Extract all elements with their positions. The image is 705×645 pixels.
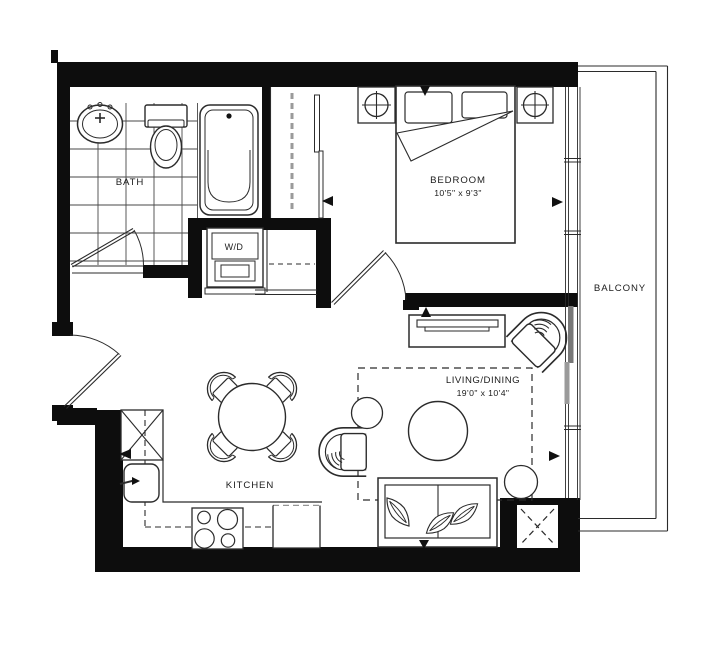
balcony-label: BALCONY [594, 283, 646, 294]
entry-door [64, 335, 121, 409]
living-dining-dimensions: 19'0" x 10'4" [457, 388, 510, 398]
balcony-outline [578, 66, 668, 531]
balcony-sliding-door-panel [568, 306, 574, 363]
wall-entry-cap-top [52, 322, 73, 336]
bath-label: BATH [116, 177, 144, 188]
bath-door [71, 229, 144, 274]
nightstand-left [358, 87, 395, 123]
nightstand-right [517, 87, 553, 123]
tub-drain [226, 113, 231, 118]
stove [192, 508, 243, 549]
kitchen-label: KITCHEN [226, 480, 274, 491]
round-ottoman [409, 402, 468, 461]
sofa [378, 478, 497, 547]
wall-closet-right [316, 230, 331, 308]
marker-arrow [322, 196, 333, 206]
closet [255, 230, 317, 295]
toilet [145, 105, 187, 168]
bath-sink [78, 103, 123, 144]
marker-arrow [552, 197, 563, 207]
wall-bath-east [262, 87, 271, 218]
tv [417, 320, 498, 327]
living-dining-label: LIVING/DINING [446, 375, 520, 386]
side-table [505, 466, 538, 499]
bedroom-door [332, 251, 407, 305]
floorplan-svg: BATH W/D BEDROOM 10'5" x 9'3" BALCONY KI… [0, 0, 705, 645]
pillow [405, 92, 452, 123]
bedroom-label: BEDROOM [430, 175, 486, 186]
laundry-label: W/D [225, 242, 244, 252]
wall-entry-jog [57, 408, 97, 425]
wall-bath-south [143, 265, 189, 278]
armchair-northeast [506, 302, 576, 372]
wall-bedroom-south [405, 293, 578, 307]
wall-bottom [95, 547, 505, 572]
tv-console [409, 315, 505, 347]
marker-arrow [549, 451, 560, 461]
bed [396, 86, 515, 243]
washer-dryer [205, 228, 265, 294]
dining-table [201, 366, 304, 469]
wall-closet-left [188, 230, 202, 298]
service-shaft [517, 505, 558, 548]
wall-top [57, 62, 578, 87]
side-table [352, 398, 383, 429]
bedroom-sliding-door [271, 87, 324, 218]
wall-left-upper [57, 87, 70, 335]
wall-door-cap [403, 300, 419, 310]
bedroom-dimensions: 10'5" x 9'3" [434, 188, 482, 198]
balcony-sliding-door-panel2 [565, 362, 570, 404]
wall-tick-topleft [51, 50, 58, 63]
armchair-west [319, 428, 366, 476]
floorplan-canvas: BATH W/D BEDROOM 10'5" x 9'3" BALCONY KI… [0, 0, 705, 645]
marker-arrow [421, 307, 431, 317]
kitchen-sink [120, 464, 159, 502]
fridge [273, 506, 320, 549]
bathtub [200, 105, 258, 215]
